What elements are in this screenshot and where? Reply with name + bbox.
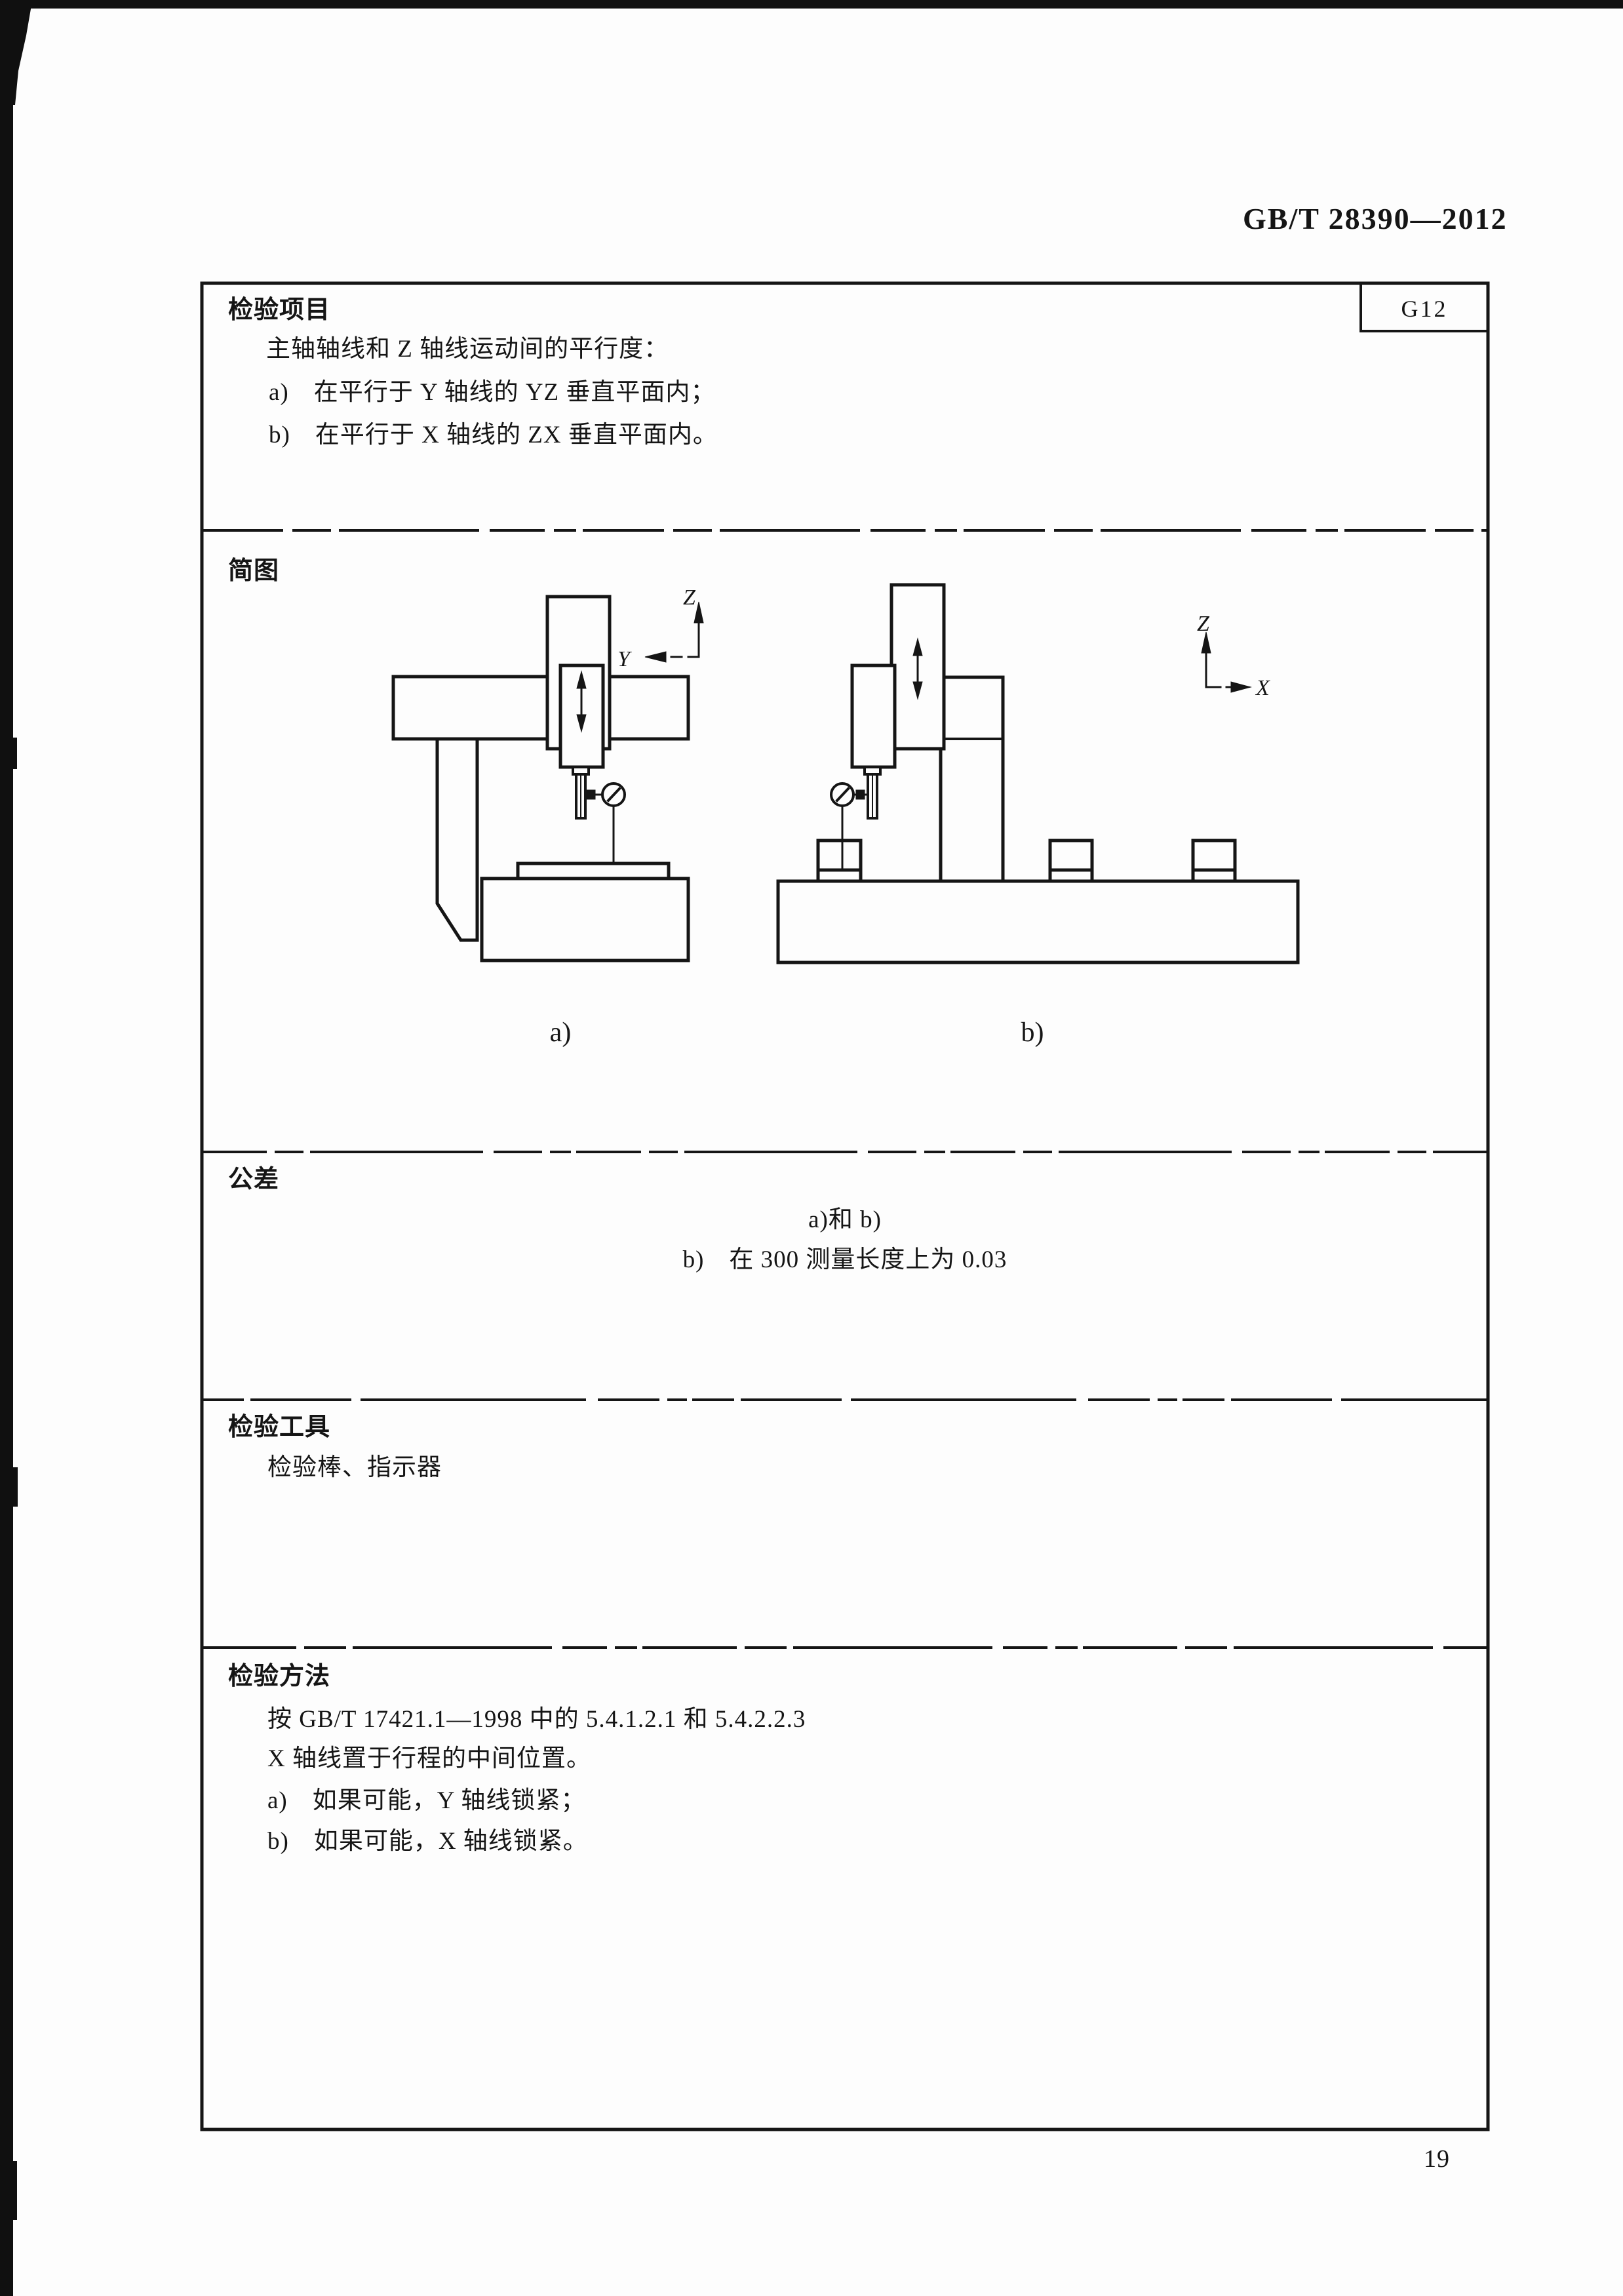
inspection-item-intro: 主轴轴线和 Z 轴线运动间的平行度： [266, 336, 669, 363]
tolerance-line-2: b) 在 300 测量长度上为 0.03 [202, 1246, 1488, 1273]
machine-b-bed [778, 881, 1298, 962]
scan-corner-blob [8, 5, 31, 105]
machine-b-column [941, 677, 1003, 881]
method-line-1: 按 GB/T 17421.1—1998 中的 5.4.1.2.1 和 5.4.2… [267, 1706, 806, 1733]
axes-b: Z X [1197, 612, 1270, 700]
x-axis-arrowhead-b [1231, 682, 1251, 692]
scan-left-bar [0, 0, 13, 2296]
method-line-4: b) 如果可能，X 轴线锁紧。 [267, 1828, 588, 1855]
y-axis-arrowhead-a [645, 652, 666, 662]
diagram-b-caption: b) [1021, 1018, 1044, 1048]
indicator-contact-a [587, 790, 595, 799]
tools-content: 检验棒、指示器 [267, 1454, 442, 1481]
scanned-standard-page: { "page": { "header": "GB/T 28390—2012",… [0, 0, 1623, 2296]
gauge-block-1 [818, 841, 861, 881]
machine-a-beam [393, 677, 688, 739]
diagram-section-label: 简图 [228, 557, 279, 585]
tolerance-line-1: a)和 b) [202, 1206, 1488, 1233]
machine-a-support [437, 739, 477, 940]
z-axis-label-a: Z [683, 585, 696, 610]
z-axis-label-b: Z [1197, 612, 1210, 636]
z-axis-arrowhead-a [694, 602, 703, 623]
diagram-a: Z Y a) [393, 585, 703, 1048]
machine-a-base [482, 879, 688, 960]
tools-section-label: 检验工具 [228, 1414, 330, 1442]
method-line-2: X 轴线置于行程的中间位置。 [267, 1745, 591, 1772]
standard-number-header: GB/T 28390—2012 [1243, 202, 1508, 236]
diagram-b: Z X b) [778, 585, 1298, 1048]
indicator-contact-b [856, 790, 865, 799]
method-line-3: a) 如果可能，Y 轴线锁紧； [267, 1787, 585, 1814]
inspection-item-a: a) 在平行于 Y 轴线的 YZ 垂直平面内； [269, 379, 715, 406]
diagram-a-caption: a) [550, 1018, 572, 1048]
tolerance-section-label: 公差 [228, 1166, 279, 1194]
gauge-block-3 [1193, 841, 1235, 881]
scan-top-bar [0, 0, 1623, 9]
item-code: G12 [1401, 295, 1448, 323]
x-axis-label-b: X [1255, 676, 1270, 700]
item-code-badge: G12 [1361, 286, 1488, 331]
inspection-item-b: b) 在平行于 X 轴线的 ZX 垂直平面内。 [269, 422, 718, 448]
page-artwork: Z Y a) [0, 0, 1623, 2296]
y-axis-label-a: Y [617, 647, 632, 671]
gauge-block-2 [1050, 841, 1092, 881]
method-section-label: 检验方法 [228, 1663, 330, 1691]
axes-a: Z Y [617, 585, 703, 671]
scan-edge-artifacts [0, 0, 1623, 2296]
machine-a-table [518, 863, 669, 879]
page-number: 19 [1424, 2145, 1450, 2173]
machine-b-spindle-head [852, 665, 895, 767]
inspection-item-label: 检验项目 [228, 296, 330, 325]
